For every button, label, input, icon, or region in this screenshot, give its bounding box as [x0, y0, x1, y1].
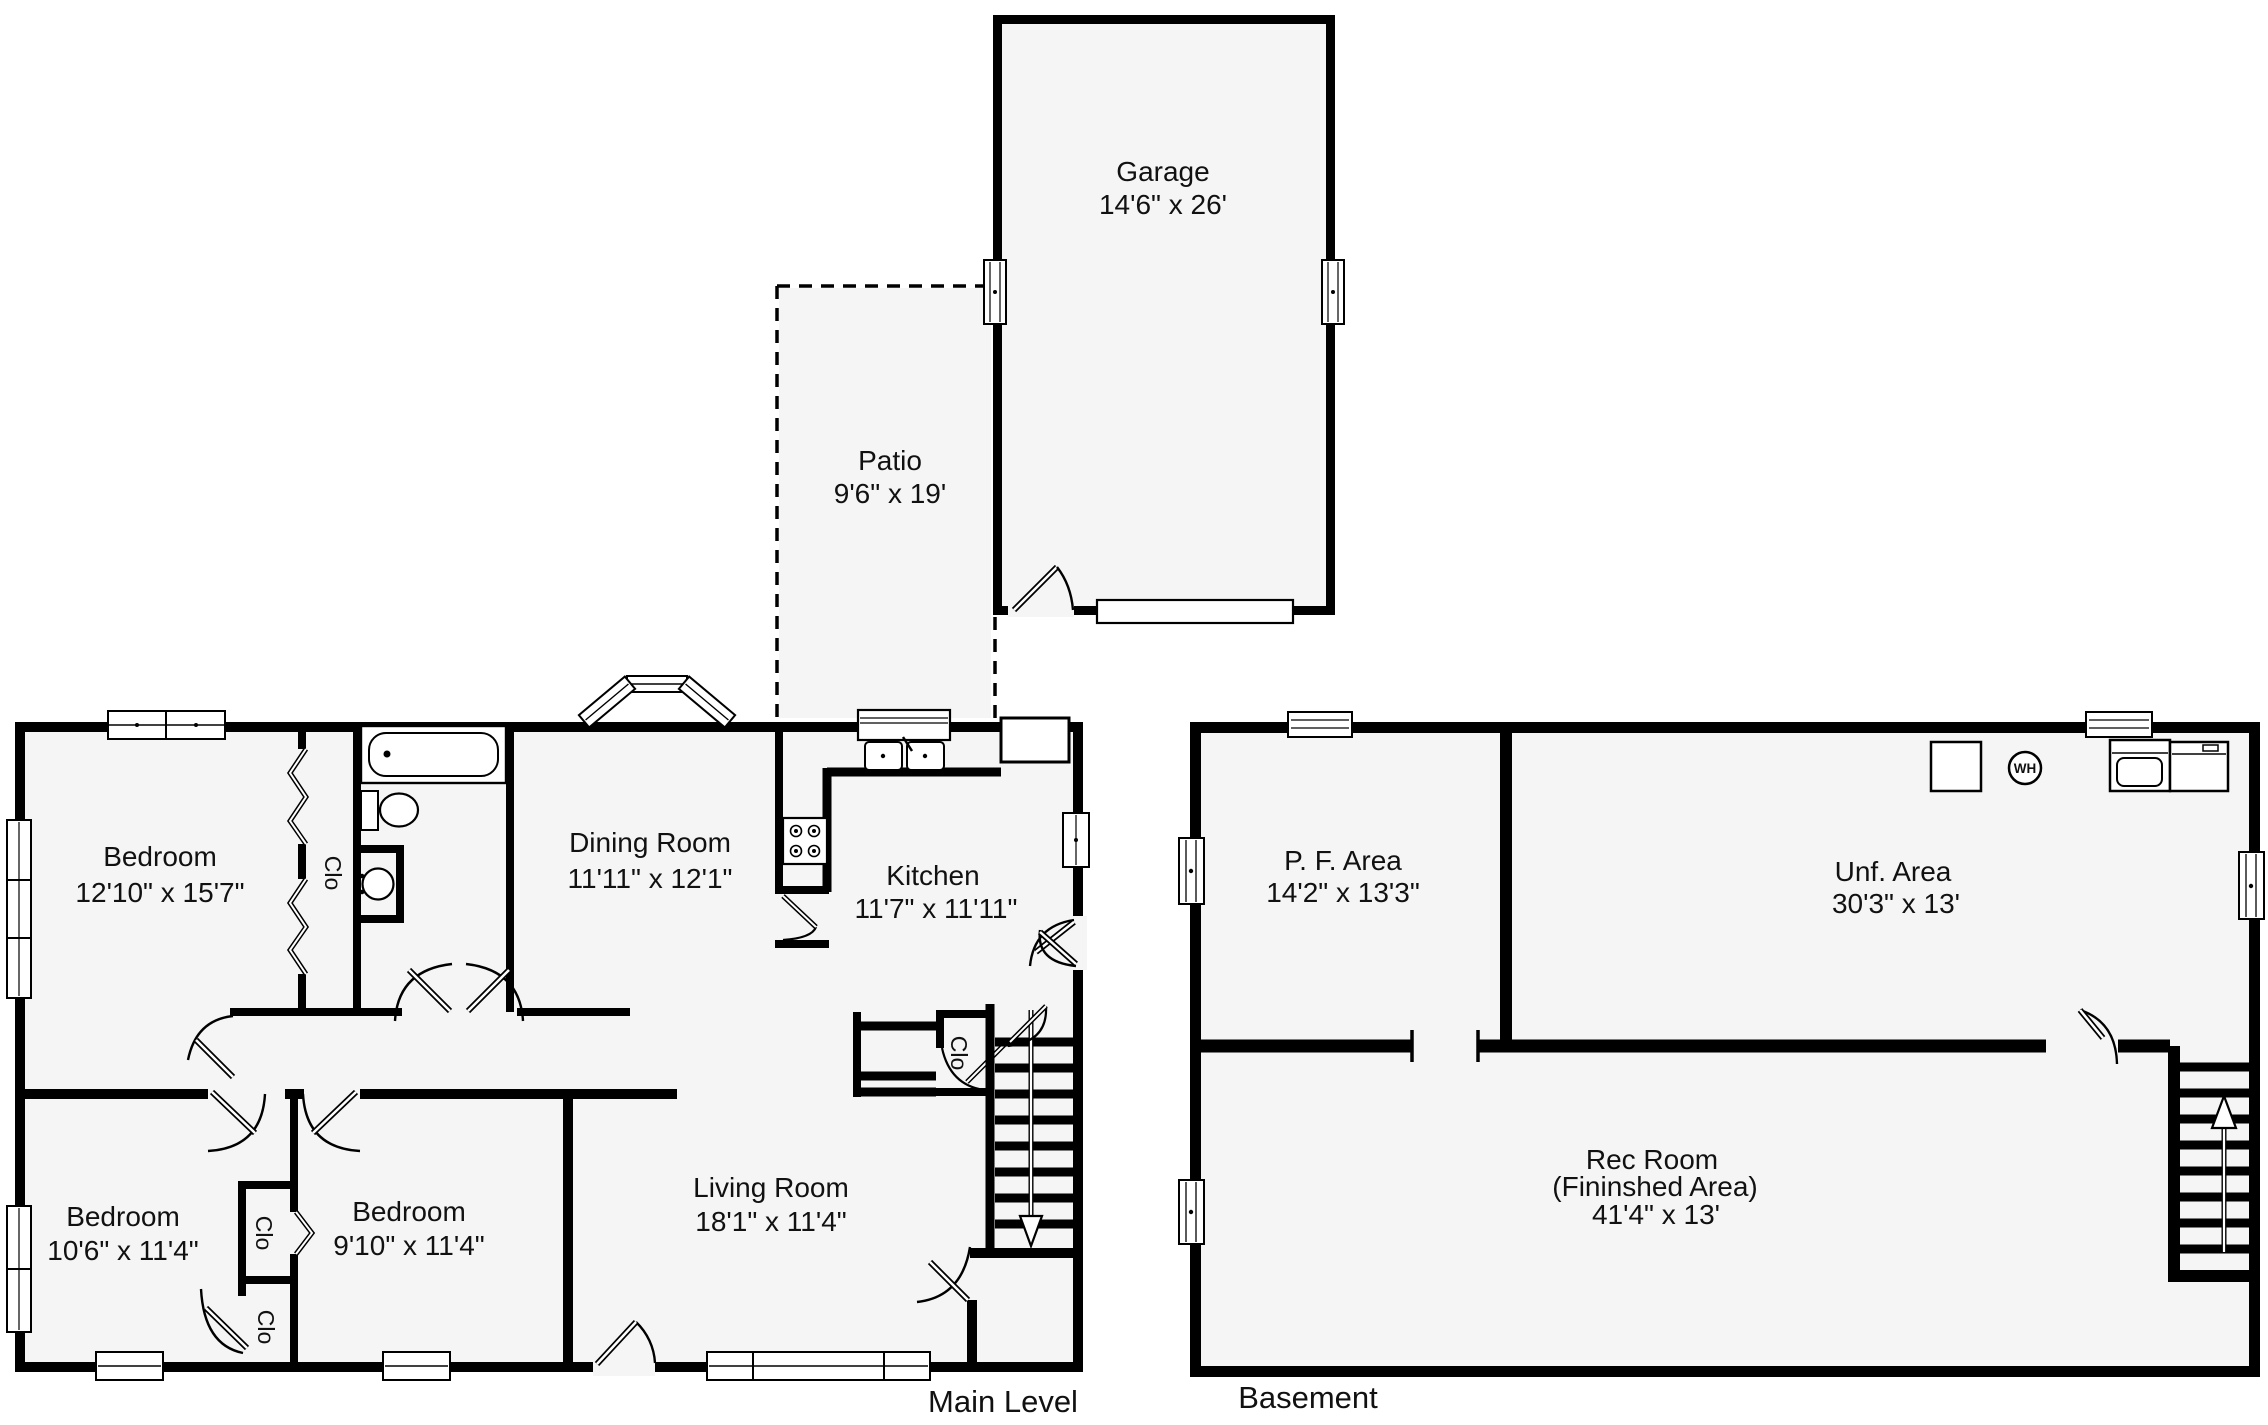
bay-window — [579, 676, 735, 727]
main-level-plan: Bedroom 12'10" x 15'7" Dining Room 11'11… — [7, 676, 1089, 1380]
room-dims: 41'4" x 13' — [1592, 1199, 1720, 1230]
room-name: Bedroom — [103, 841, 217, 872]
cased-opening — [1412, 1037, 1478, 1055]
room-name: Patio — [858, 445, 922, 476]
room-dims: 18'1" x 11'4" — [695, 1206, 846, 1237]
garage-room — [984, 20, 1344, 624]
basement-plan: WH P. F. Area 14'2" x 13'3" Unf. Area 30… — [1179, 712, 2264, 1372]
room-name: Living Room — [693, 1172, 849, 1203]
refrigerator — [1001, 718, 1069, 762]
room-name: Bedroom — [66, 1201, 180, 1232]
window — [1179, 1180, 1204, 1244]
window — [383, 1352, 450, 1380]
window — [1179, 838, 1204, 904]
floor-plan-drawing: Bedroom 12'10" x 15'7" Dining Room 11'11… — [0, 0, 2268, 1425]
closet-label: Clo — [320, 856, 346, 891]
room-name: Kitchen — [886, 860, 979, 891]
room-dims: 9'10" x 11'4" — [333, 1230, 484, 1261]
closet-label: Clo — [251, 1216, 277, 1251]
room-subname: (Fininshed Area) — [1552, 1171, 1757, 1202]
window — [96, 1352, 163, 1380]
caption-main-level: Main Level — [928, 1384, 1078, 1419]
window — [2086, 712, 2152, 737]
room-dims: 11'7" x 11'11" — [855, 893, 1018, 924]
room-name: Dining Room — [569, 827, 731, 858]
window — [7, 820, 31, 998]
closet-label: Clo — [946, 1036, 972, 1071]
window — [108, 711, 225, 739]
water-heater: WH — [2009, 752, 2041, 784]
laundry-sink — [2110, 740, 2170, 791]
floor-plan-page: Bedroom 12'10" x 15'7" Dining Room 11'11… — [0, 0, 2268, 1425]
caption-basement: Basement — [1238, 1380, 1378, 1415]
room-dims: 14'6" x 26' — [1099, 189, 1227, 220]
counter — [2170, 742, 2228, 791]
bathtub — [361, 726, 506, 783]
room-name: Unf. Area — [1835, 856, 1952, 887]
water-heater-label: WH — [2014, 761, 2037, 776]
room-dims: 11'11" x 12'1" — [568, 863, 733, 894]
window — [1322, 260, 1344, 324]
window — [1288, 712, 1352, 737]
window — [2239, 852, 2264, 919]
room-dims: 14'2" x 13'3" — [1266, 877, 1420, 908]
room-dims: 9'6" x 19' — [834, 478, 946, 509]
toilet — [361, 791, 418, 830]
room-name: P. F. Area — [1284, 845, 1402, 876]
stove — [783, 818, 827, 864]
washer — [1931, 742, 1981, 791]
room-dims: 30'3" x 13' — [1832, 888, 1960, 919]
room-label-unf-area: Unf. Area 30'3" x 13' — [1832, 856, 1960, 919]
room-dims: 10'6" x 11'4" — [47, 1235, 198, 1266]
window — [7, 1206, 31, 1332]
window — [1063, 813, 1089, 867]
room-dims: 12'10" x 15'7" — [75, 877, 244, 908]
rec-door-opening — [2046, 1037, 2118, 1055]
room-name: Bedroom — [352, 1196, 466, 1227]
window — [984, 260, 1006, 324]
closet-label: Clo — [253, 1310, 279, 1345]
room-name: Garage — [1116, 156, 1209, 187]
window — [707, 1352, 930, 1380]
overhead-garage-door — [1097, 600, 1293, 623]
room-label-pf-area: P. F. Area 14'2" x 13'3" — [1266, 845, 1420, 908]
